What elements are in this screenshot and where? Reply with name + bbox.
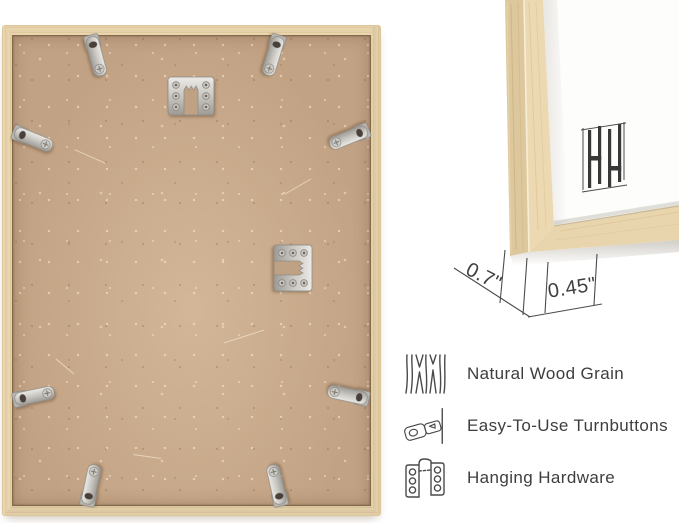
sawtooth-hanger-right — [274, 245, 312, 291]
turnbutton-bottom-right — [265, 463, 289, 507]
feature-label: Hanging Hardware — [467, 468, 615, 488]
back-hardware-overlay — [3, 26, 380, 515]
turnbutton-right-upper — [327, 122, 372, 152]
product-infographic: 0.7" 0.45" Natural Wood Grain — [0, 0, 679, 523]
feature-row-hanging: Hanging Hardware — [402, 455, 674, 501]
feature-label: Easy-To-Use Turnbuttons — [467, 416, 668, 436]
turnbutton-right-lower — [326, 383, 370, 406]
turnbutton-left-lower — [11, 384, 55, 407]
turnbutton-top-left — [83, 33, 108, 77]
feature-row-wood-grain: Natural Wood Grain — [402, 351, 674, 397]
feature-row-turnbuttons: Easy-To-Use Turnbuttons — [402, 403, 674, 449]
wood-grain-icon — [402, 351, 448, 397]
depth-dimension-label: 0.7" — [462, 258, 505, 294]
sawtooth-hanger-top — [168, 77, 214, 115]
feature-list: Natural Wood Grain Easy-To-Use Turnbutto… — [402, 351, 674, 507]
feature-label: Natural Wood Grain — [467, 364, 624, 384]
hanging-hardware-icon — [402, 455, 448, 501]
turnbutton-icon — [402, 403, 448, 449]
turnbutton-bottom-left — [79, 463, 102, 507]
turnbutton-top-right — [260, 33, 287, 78]
frame-corner-detail: 0.7" 0.45" — [440, 0, 679, 330]
turnbutton-left-upper — [10, 124, 55, 154]
frame-back-photo — [3, 26, 380, 515]
face-dimension-label: 0.45" — [546, 273, 597, 302]
